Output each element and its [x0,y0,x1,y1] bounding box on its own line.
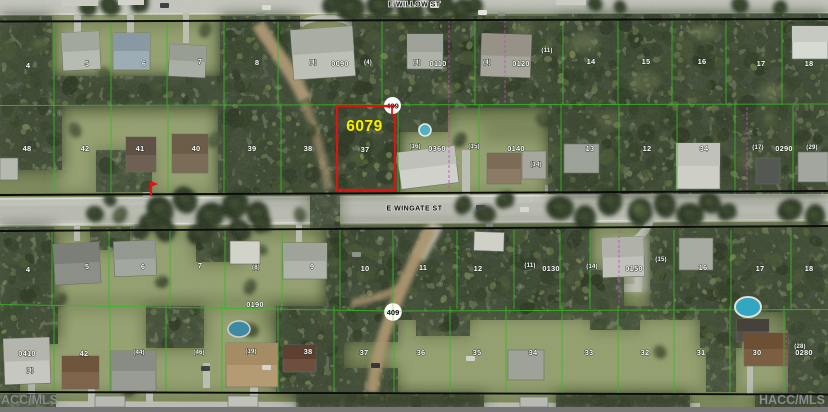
svg-text:5: 5 [85,262,89,271]
svg-text:0090: 0090 [331,59,349,68]
svg-text:(46): (46) [193,350,204,356]
svg-text:(14): (14) [586,264,597,270]
svg-text:34: 34 [529,348,538,357]
svg-text:0290: 0290 [775,144,793,153]
svg-text:17: 17 [757,59,766,68]
svg-text:36: 36 [417,348,426,357]
svg-text:E WILLOW ST: E WILLOW ST [388,2,440,9]
svg-text:(15): (15) [655,257,666,263]
svg-text:42: 42 [81,144,90,153]
svg-text:14: 14 [587,57,596,66]
svg-text:(4): (4) [364,60,372,66]
svg-text:40: 40 [192,144,201,153]
svg-text:9: 9 [310,262,314,271]
svg-text:(11): (11) [541,48,552,54]
svg-text:4: 4 [26,61,31,70]
svg-text:12: 12 [474,264,483,273]
svg-text:(4): (4) [483,60,491,66]
svg-text:409: 409 [387,308,400,317]
svg-text:(29): (29) [806,145,817,151]
svg-text:12: 12 [643,144,652,153]
svg-text:30: 30 [753,348,762,357]
svg-text:0150: 0150 [625,264,643,273]
svg-text:37: 37 [361,145,370,154]
svg-text:(11): (11) [524,263,535,269]
svg-text:32: 32 [641,348,650,357]
svg-text:E WINGATE ST: E WINGATE ST [386,206,442,213]
svg-text:0190: 0190 [246,300,264,309]
svg-text:HACC/MLS: HACC/MLS [759,393,825,407]
svg-text:(15): (15) [468,144,479,150]
svg-text:6: 6 [141,262,145,271]
svg-text:16: 16 [699,263,708,272]
svg-text:5: 5 [85,59,89,68]
svg-text:17: 17 [756,264,765,273]
svg-text:(17): (17) [752,145,763,151]
svg-text:48: 48 [23,144,32,153]
svg-text:(44): (44) [133,350,144,356]
svg-text:0120: 0120 [512,59,530,68]
svg-text:11: 11 [419,263,427,272]
svg-text:38: 38 [304,144,313,153]
svg-text:18: 18 [805,264,814,273]
svg-text:35: 35 [473,348,482,357]
svg-text:6: 6 [142,59,146,68]
svg-text:6079: 6079 [346,118,382,135]
svg-text:(4): (4) [26,368,34,374]
svg-text:13: 13 [586,144,595,153]
svg-text:18: 18 [805,59,814,68]
svg-text:(28): (28) [794,344,805,350]
svg-text:34: 34 [700,144,709,153]
svg-text:7: 7 [198,57,202,66]
svg-text:(8): (8) [252,265,260,271]
svg-text:(19): (19) [245,349,256,355]
svg-text:0140: 0140 [507,144,525,153]
svg-text:10: 10 [361,264,370,273]
svg-text:38: 38 [304,347,313,356]
svg-text:HACC/MLS: HACC/MLS [0,393,58,407]
svg-text:(4): (4) [413,60,421,66]
svg-text:4: 4 [26,265,31,274]
svg-text:(4): (4) [309,60,317,66]
svg-text:33: 33 [585,348,594,357]
svg-text:31: 31 [697,348,706,357]
svg-text:15: 15 [642,57,651,66]
svg-text:42: 42 [80,349,89,358]
svg-text:16: 16 [698,57,707,66]
svg-text:(14): (14) [530,162,541,168]
svg-text:0410: 0410 [18,349,36,358]
svg-text:8: 8 [255,58,259,67]
svg-text:0360: 0360 [428,144,446,153]
svg-text:0110: 0110 [429,59,446,68]
svg-text:0130: 0130 [542,264,560,273]
svg-text:37: 37 [360,348,369,357]
svg-text:39: 39 [248,144,257,153]
svg-text:41: 41 [136,144,145,153]
svg-text:7: 7 [198,261,202,270]
svg-text:(16): (16) [409,144,420,150]
